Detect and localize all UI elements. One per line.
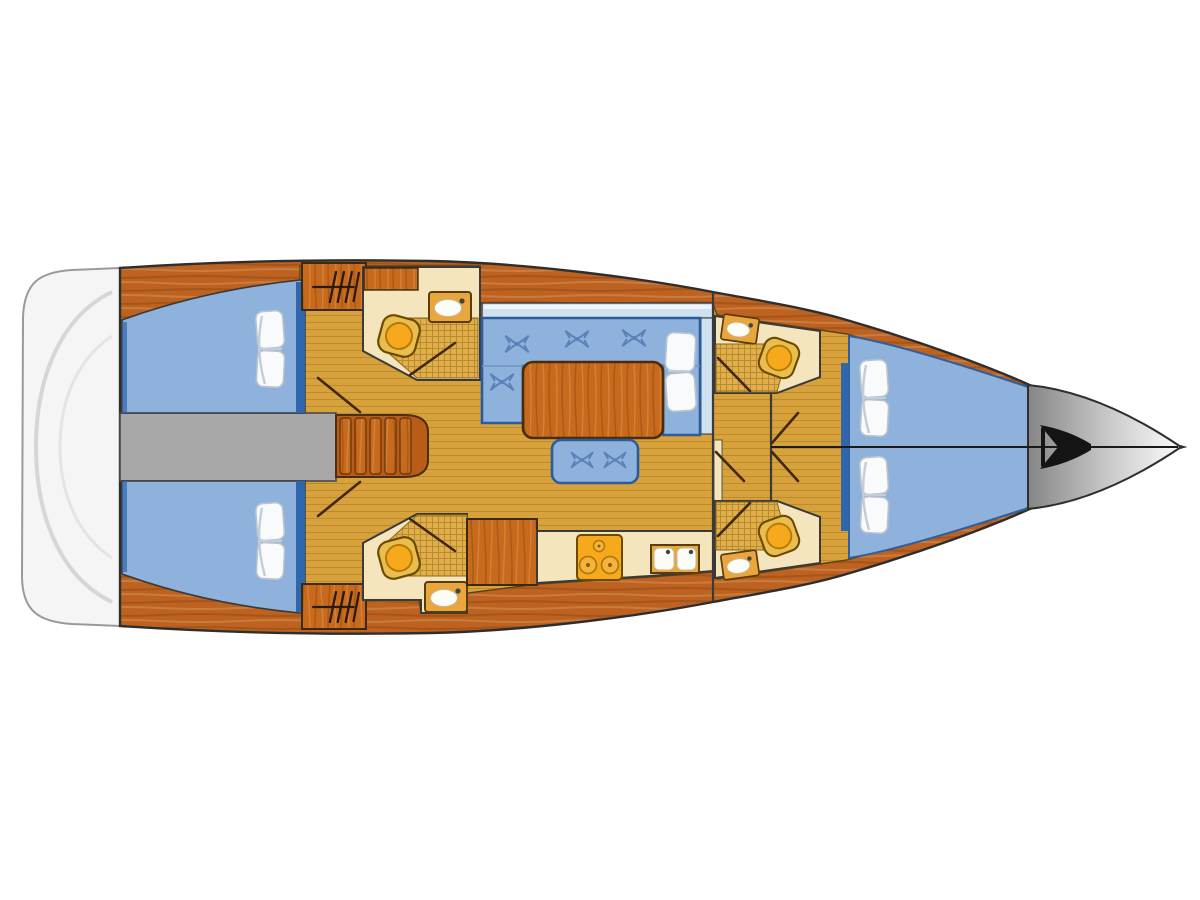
step bbox=[385, 418, 396, 474]
yacht-floorplan-diagram: Sailing yacht interior layout floor plan… bbox=[0, 0, 1200, 900]
yacht-floorplan-page: Sailing yacht interior layout floor plan… bbox=[0, 0, 1200, 900]
bench-seat bbox=[552, 440, 638, 483]
hanging-locker-aft-starboard bbox=[302, 584, 366, 629]
berth-edge-trim bbox=[122, 322, 127, 413]
vanity-counter bbox=[364, 268, 418, 290]
step bbox=[400, 418, 411, 474]
hanging-locker-aft-port bbox=[302, 263, 366, 310]
step bbox=[355, 418, 366, 474]
galley-cabinet bbox=[467, 519, 537, 585]
pillow-pair-icon bbox=[859, 359, 889, 436]
companionway-steps bbox=[336, 415, 428, 477]
hull-window-strip bbox=[701, 318, 713, 434]
pillow-pair-icon bbox=[255, 502, 285, 579]
step bbox=[340, 418, 351, 474]
pillow-pair-icon bbox=[255, 310, 285, 387]
saloon-table bbox=[523, 362, 663, 438]
swim-platform bbox=[22, 268, 120, 626]
engine-box bbox=[120, 413, 336, 481]
sink-icon bbox=[429, 292, 471, 322]
galley-sink-icon bbox=[651, 545, 699, 573]
engine-compartment bbox=[120, 413, 336, 481]
step bbox=[370, 418, 381, 474]
berth-edge-trim bbox=[122, 481, 127, 572]
window-highlight bbox=[484, 305, 711, 309]
sink-icon bbox=[721, 314, 760, 344]
pillow-pair-icon bbox=[859, 456, 889, 533]
stove-icon bbox=[577, 535, 622, 580]
sink-icon bbox=[721, 550, 760, 580]
sink-icon bbox=[425, 582, 467, 612]
